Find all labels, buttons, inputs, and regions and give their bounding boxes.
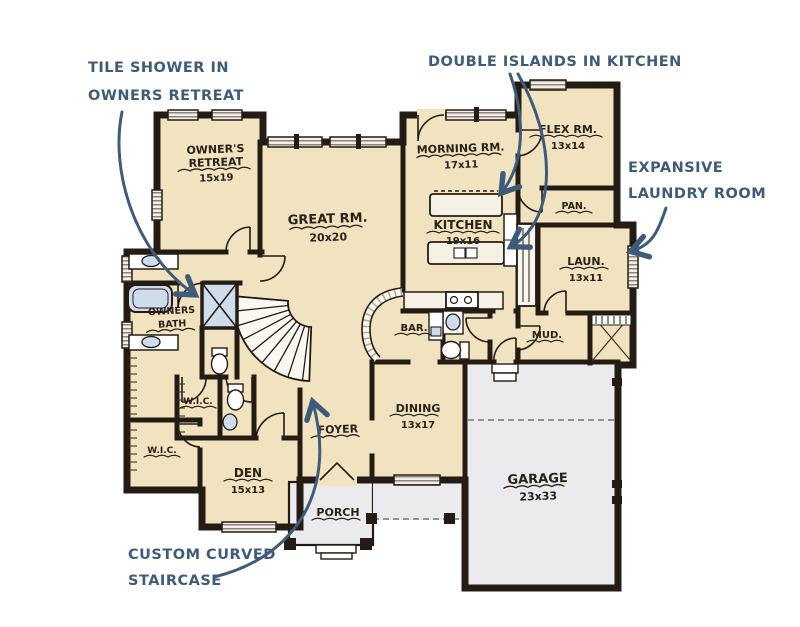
room-label-porch: PORCH [312, 506, 360, 520]
kitchen-name: KITCHEN [433, 218, 492, 232]
kitchen-dims: 19x16 [446, 236, 480, 247]
annotation-laundry-line1: EXPANSIVE [628, 160, 723, 176]
dining-name: DINING [396, 402, 441, 415]
garage-entry-steps [492, 364, 518, 381]
kitchen-tall-cabinets [504, 214, 517, 266]
bath-vanity-lower [129, 335, 178, 350]
room-label-wic-upper: W.I.C. [180, 397, 216, 408]
annotation-tile-shower-line2: OWNERS RETREAT [88, 88, 244, 104]
chase-column [517, 224, 536, 306]
annotation-laundry-line2: LAUNDRY ROOM [628, 186, 766, 202]
pantry-name: PAN. [561, 201, 586, 212]
wic-upper-name: W.I.C. [183, 397, 212, 407]
annotation-staircase-line2: STAIRCASE [128, 573, 222, 589]
owners-bath-name2: BATH [158, 318, 187, 330]
entry-steps [316, 545, 356, 559]
mud-name: MUD. [532, 330, 562, 341]
closet-shelf [592, 315, 631, 325]
room-label-bar: BAR. [395, 323, 431, 335]
bar-counter [429, 312, 443, 340]
owners-retreat-dims: 15x19 [199, 172, 234, 184]
room-label-wic-lower: W.I.C. [144, 446, 180, 457]
dining-dims: 13x17 [401, 420, 435, 431]
laundry-dims: 13x11 [569, 273, 603, 284]
kitchen-island-1 [430, 191, 502, 216]
water-closet-toilet [212, 348, 228, 374]
garage-dims: 23x33 [519, 489, 557, 503]
tile-shower [202, 283, 237, 328]
morning-rm-dims: 17x11 [444, 159, 479, 171]
den-dims: 15x13 [231, 485, 265, 496]
wic-lower-name: W.I.C. [147, 446, 176, 456]
floor-plan-page: OWNER'S RETREAT 15x19 GREAT RM. 20x20 MO… [0, 0, 800, 627]
porch-name: PORCH [316, 506, 359, 519]
laundry-name: LAUN. [567, 255, 605, 268]
annotation-tile-shower-line1: TILE SHOWER IN [88, 60, 229, 76]
annotation-double-islands: DOUBLE ISLANDS IN KITCHEN [428, 54, 682, 70]
kitchen-counter-range [404, 292, 503, 309]
den-name: DEN [234, 466, 262, 480]
flex-rm-name: FLEX RM. [539, 123, 597, 136]
arrow-laundry [632, 208, 666, 251]
great-rm-dims: 20x20 [309, 230, 347, 244]
flex-rm-dims: 13x14 [551, 141, 585, 152]
annotation-staircase-line1: CUSTOM CURVED [128, 547, 276, 563]
floor-plan-drawing: OWNER'S RETREAT 15x19 GREAT RM. 20x20 MO… [0, 0, 800, 627]
bath-vanity-upper [129, 254, 178, 269]
bar-name: BAR. [400, 323, 427, 334]
room-label-mud: MUD. [527, 330, 563, 342]
